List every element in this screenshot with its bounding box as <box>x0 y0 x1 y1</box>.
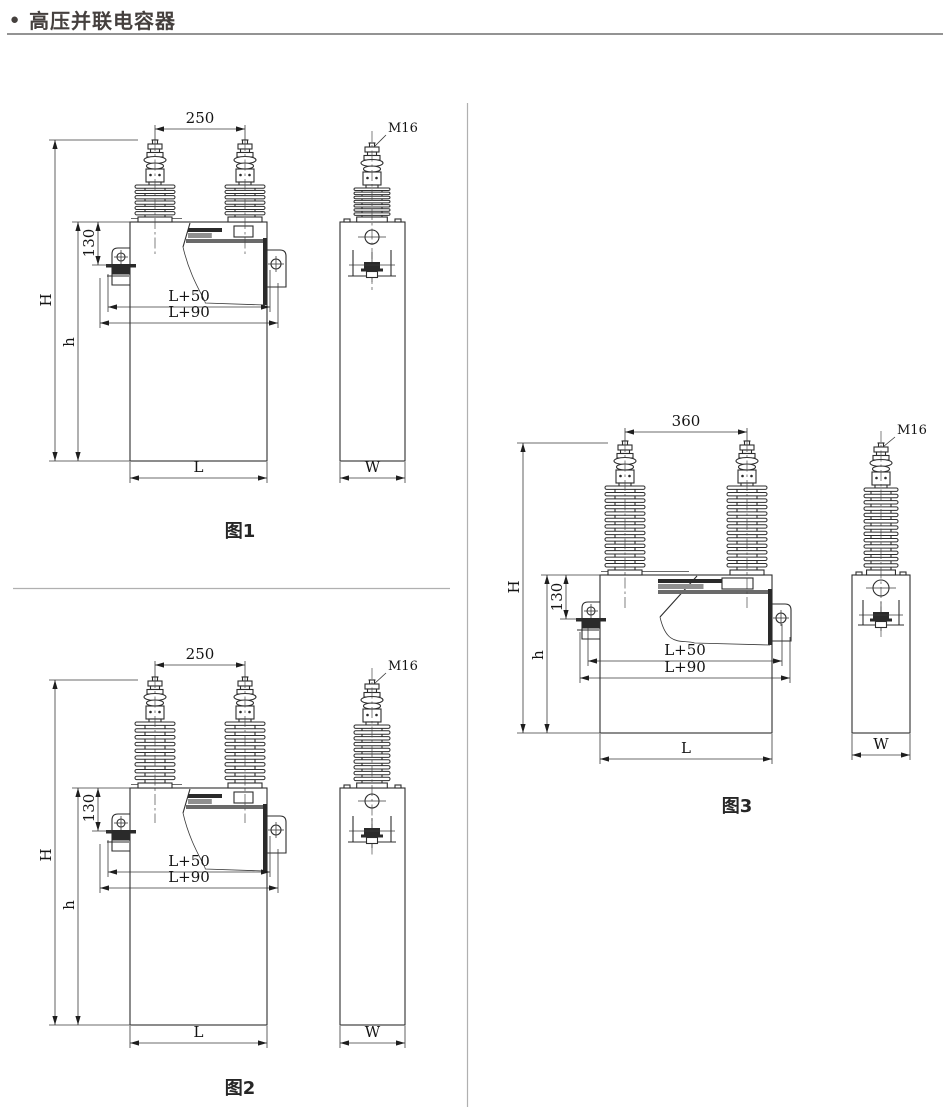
rect <box>852 575 910 733</box>
circle <box>149 711 152 714</box>
dim-arrowhead <box>236 126 245 131</box>
section-bullet-icon: ● <box>10 12 19 27</box>
dim-label-span: 250 <box>186 109 215 127</box>
figure-caption: 图2 <box>225 1078 256 1099</box>
dim-label-130: 130 <box>548 583 566 612</box>
dim-label-H: H <box>37 293 55 306</box>
technical-drawing: 250Hh130L+50L+90LM16W图1250Hh130L+50L+90L… <box>0 0 950 1107</box>
rect <box>188 794 222 798</box>
line <box>883 437 895 447</box>
dim-arrowhead <box>100 885 109 890</box>
circle <box>619 475 622 478</box>
rect <box>112 268 130 275</box>
rect <box>234 226 253 237</box>
dim-arrowhead <box>773 658 782 663</box>
dim-arrowhead <box>75 452 80 461</box>
mounting-bracket-right <box>772 604 791 641</box>
rect <box>188 233 212 238</box>
rect <box>856 572 862 575</box>
dim-arrowhead <box>75 1016 80 1025</box>
rect <box>658 584 704 589</box>
dim-arrowhead <box>52 1016 57 1025</box>
dim-arrowhead <box>520 724 525 733</box>
circle <box>628 475 631 478</box>
dim-label-H: H <box>505 580 523 593</box>
circle <box>375 714 378 717</box>
circle <box>149 174 152 177</box>
dim-arrowhead <box>236 662 245 667</box>
dim-label-W: W <box>365 458 381 476</box>
dim-arrowhead <box>738 429 747 434</box>
front-view: 360Hh130L+50L+90L <box>505 412 791 764</box>
rect <box>225 196 265 199</box>
dim-arrowhead <box>901 752 910 757</box>
circle <box>158 174 161 177</box>
dim-label-l90: L+90 <box>168 868 210 886</box>
dim-label-m16: M16 <box>388 659 418 674</box>
dim-arrowhead <box>588 658 597 663</box>
dim-arrowhead <box>340 475 349 480</box>
dim-arrowhead <box>269 320 278 325</box>
dim-arrowhead <box>269 885 278 890</box>
side-view: M16W <box>340 659 418 1048</box>
catalog-page: ● 高压并联电容器 250Hh130L+50L+90LM16W图1250Hh13… <box>0 0 950 1107</box>
rect <box>367 272 378 278</box>
rect <box>188 799 212 804</box>
dim-arrowhead <box>781 675 790 680</box>
circle <box>239 711 242 714</box>
rect <box>130 222 267 461</box>
front-view: 250Hh130L+50L+90L <box>37 109 286 483</box>
dim-label-L: L <box>194 458 204 476</box>
dim-arrowhead <box>52 680 57 689</box>
dim-label-h: h <box>60 337 78 347</box>
figure-caption: 图1 <box>225 521 256 542</box>
dim-arrowhead <box>258 475 267 480</box>
figure-1: 250Hh130L+50L+90LM16W图1 <box>37 109 418 542</box>
rect <box>344 785 350 788</box>
rect <box>876 622 887 628</box>
dim-label-m16: M16 <box>388 121 418 136</box>
dim-label-W: W <box>365 1023 381 1041</box>
rect <box>354 200 390 202</box>
rect <box>234 792 253 803</box>
dim-arrowhead <box>544 575 549 584</box>
rect <box>658 579 723 583</box>
rect <box>395 219 401 222</box>
rect <box>263 238 267 305</box>
dim-label-l90: L+90 <box>168 303 210 321</box>
dim-arrowhead <box>52 140 57 149</box>
rect <box>900 572 906 575</box>
circle <box>366 714 369 717</box>
dim-arrowhead <box>763 756 772 761</box>
dim-label-span: 250 <box>186 645 215 663</box>
dim-arrowhead <box>155 662 164 667</box>
figure-2: 250Hh130L+50L+90LM16W图2 <box>37 645 418 1099</box>
dim-arrowhead <box>130 1040 139 1045</box>
rect <box>340 788 405 1025</box>
dim-arrowhead <box>340 1040 349 1045</box>
dim-arrowhead <box>580 675 589 680</box>
header-underline <box>7 33 943 35</box>
dim-label-L: L <box>681 739 691 757</box>
rect <box>340 222 405 461</box>
rect <box>188 228 222 232</box>
dim-arrowhead <box>396 1040 405 1045</box>
rect <box>395 785 401 788</box>
dim-arrowhead <box>52 452 57 461</box>
line <box>374 135 386 147</box>
circle <box>158 711 161 714</box>
dim-label-130: 130 <box>80 229 98 258</box>
circle <box>248 711 251 714</box>
dim-arrowhead <box>600 756 609 761</box>
dim-arrowhead <box>258 1040 267 1045</box>
section-header: ● 高压并联电容器 <box>10 5 176 34</box>
rect <box>135 196 175 199</box>
dim-arrowhead <box>396 475 405 480</box>
dim-label-W: W <box>873 735 889 753</box>
dim-arrowhead <box>852 752 861 757</box>
line <box>374 673 386 684</box>
dim-arrowhead <box>100 320 109 325</box>
rect <box>263 804 267 871</box>
side-view: M16W <box>340 121 418 483</box>
dim-arrowhead <box>155 126 164 131</box>
dim-arrowhead <box>95 822 100 831</box>
rect <box>106 830 136 834</box>
dim-label-H: H <box>37 848 55 861</box>
dim-label-m16: M16 <box>897 423 927 438</box>
dim-arrowhead <box>544 724 549 733</box>
rect <box>186 805 265 809</box>
rect <box>722 578 753 589</box>
circle <box>875 477 878 480</box>
rect <box>864 545 898 548</box>
page-title: 高压并联电容器 <box>29 5 176 34</box>
circle <box>375 177 378 180</box>
circle <box>750 475 753 478</box>
dim-arrowhead <box>563 575 568 584</box>
dim-arrowhead <box>130 475 139 480</box>
rect <box>658 590 768 594</box>
dim-label-span: 360 <box>672 412 701 430</box>
rect <box>106 264 136 268</box>
rect <box>344 219 350 222</box>
figure-3: 360Hh130L+50L+90LM16W图3 <box>505 412 927 817</box>
rect <box>576 618 606 622</box>
rect <box>864 520 898 523</box>
circle <box>248 174 251 177</box>
circle <box>884 477 887 480</box>
rect <box>367 838 378 844</box>
rect <box>186 239 265 243</box>
dim-label-h: h <box>60 900 78 910</box>
dim-label-130: 130 <box>80 794 98 823</box>
figure-caption: 图3 <box>722 796 753 817</box>
circle <box>741 475 744 478</box>
side-view: M16W <box>852 423 927 760</box>
dim-arrowhead <box>108 304 117 309</box>
circle <box>366 177 369 180</box>
dim-arrowhead <box>108 869 117 874</box>
rect <box>768 589 772 645</box>
dim-label-h: h <box>529 650 547 660</box>
rect <box>130 788 267 1025</box>
dim-label-l90: L+90 <box>664 658 706 676</box>
circle <box>239 174 242 177</box>
front-view: 250Hh130L+50L+90L <box>37 645 286 1048</box>
rect <box>112 834 130 841</box>
dim-label-l50: L+50 <box>664 641 706 659</box>
rect <box>582 622 600 629</box>
dim-arrowhead <box>625 429 634 434</box>
dim-label-L: L <box>194 1023 204 1041</box>
dim-arrowhead <box>520 443 525 452</box>
